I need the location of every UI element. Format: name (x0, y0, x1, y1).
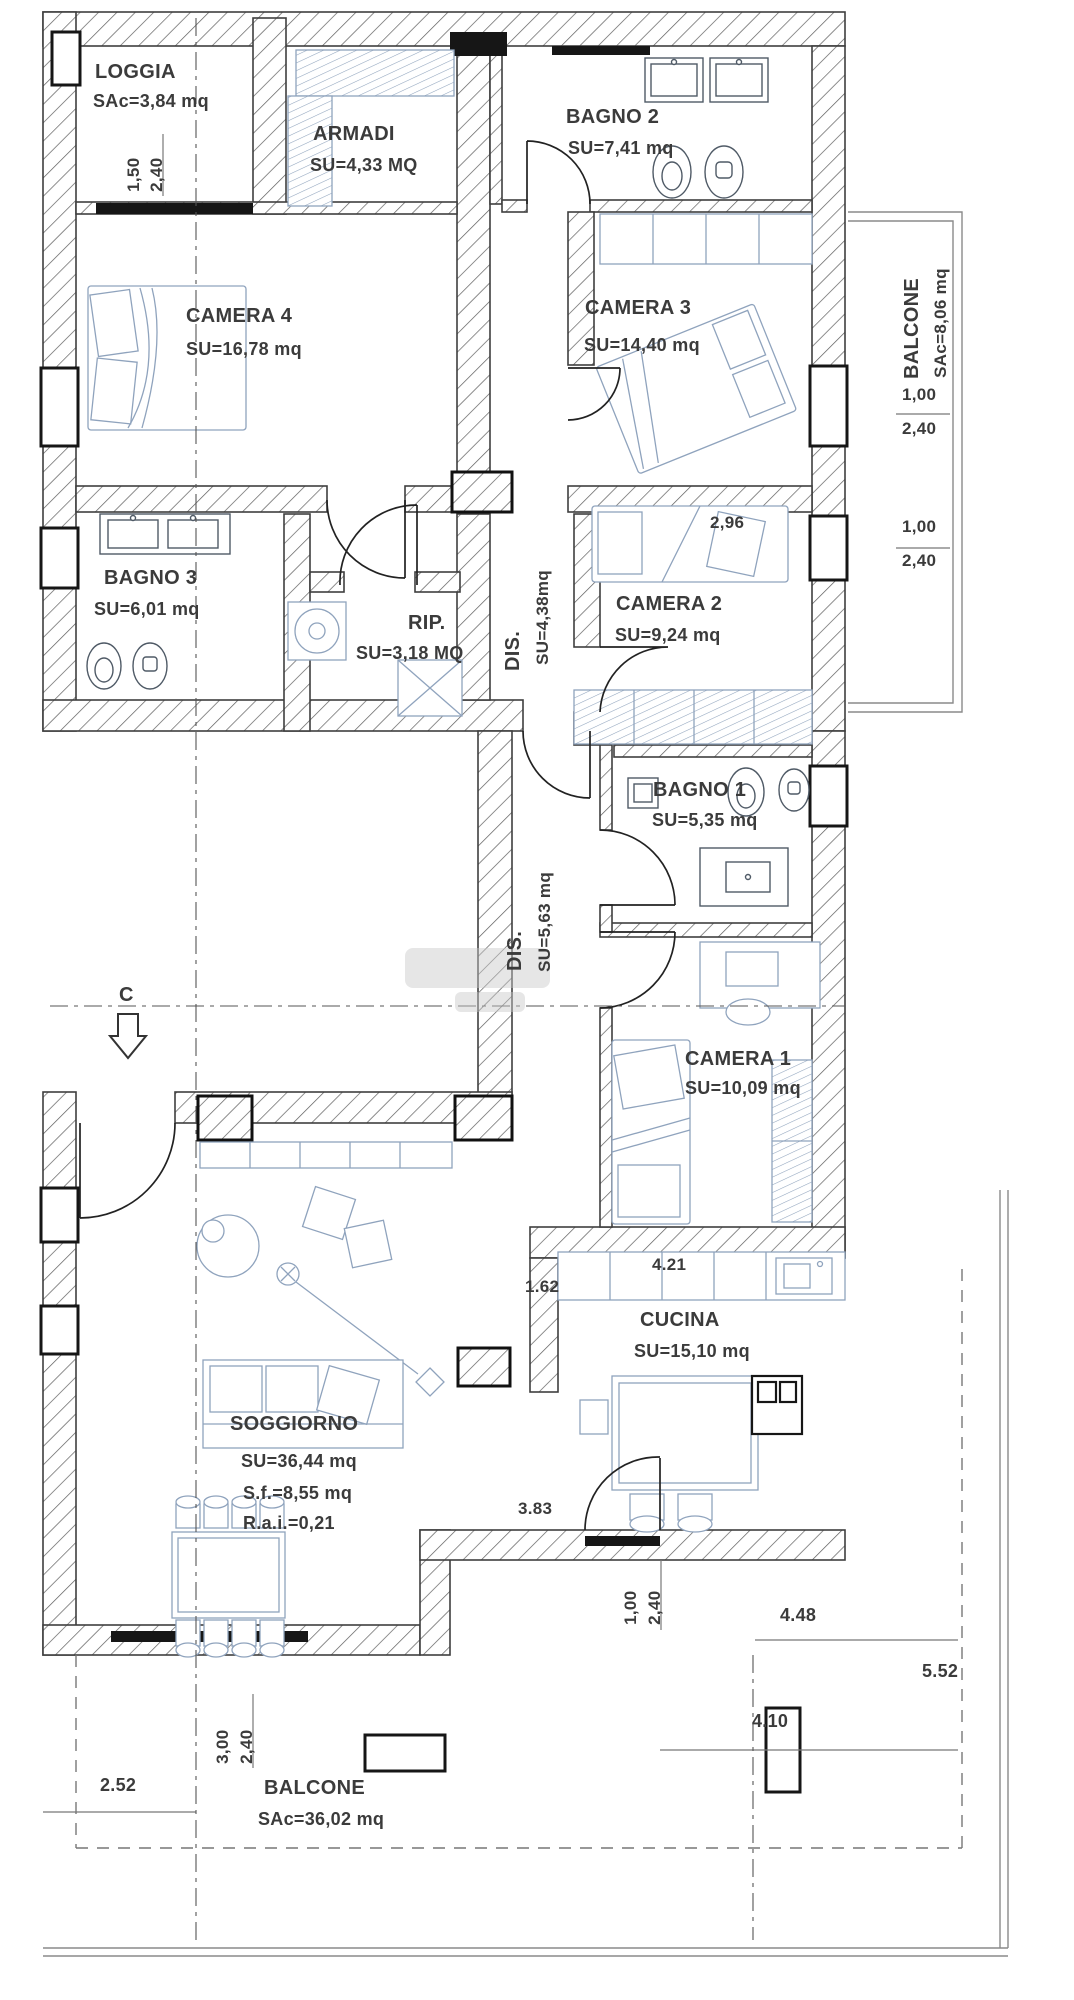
room-label-balcone-right: BALCONE (902, 278, 923, 379)
door-arc (600, 932, 675, 1008)
room-area-dis1: SU=4,38mq (534, 570, 552, 665)
desk (700, 942, 820, 1025)
dim-balcone-right-lower-a: 1,00 (902, 518, 936, 536)
wall (43, 12, 845, 46)
wall (490, 46, 502, 204)
dim-terrace-width: 4.48 (780, 1606, 816, 1625)
room-area-sf-soggiorno: S.f.=8,55 mq (243, 1484, 352, 1503)
room-label-dis1: DIS. (503, 631, 524, 671)
door-arc (80, 1123, 175, 1218)
room-label-cucina: CUCINA (640, 1310, 720, 1331)
room-area-balcone-right: SAc=8,06 mq (932, 268, 950, 378)
room-area-rip: SU=3,18 MQ (356, 644, 464, 663)
wall (76, 486, 327, 512)
window (810, 516, 847, 580)
wardrobe (296, 50, 454, 96)
room-area-camera4: SU=16,78 mq (186, 340, 302, 359)
door-arc (327, 500, 405, 578)
room-label-loggia: LOGGIA (95, 62, 176, 83)
room-area-balcone-bottom: SAc=36,02 mq (258, 1810, 384, 1829)
room-area-loggia: SAc=3,84 mq (93, 92, 209, 111)
wall (600, 923, 812, 937)
watermark (405, 948, 550, 988)
bidet (705, 146, 743, 198)
watermark (405, 948, 550, 1012)
room-label-bagno2: BAGNO 2 (566, 107, 659, 128)
room-label-balcone-bottom: BALCONE (264, 1778, 365, 1799)
room-label-soggiorno: SOGGIORNO (230, 1414, 358, 1435)
window (810, 766, 847, 826)
dim-loggia-width: 1,50 (125, 158, 143, 192)
closet-row (600, 214, 812, 264)
dim-cucina-door-b: 2,40 (646, 1591, 664, 1625)
dim-balcone-right-lower-b: 2,40 (902, 552, 936, 570)
toilet (87, 643, 121, 689)
room-area-dis2: SU=5,63 mq (536, 872, 554, 972)
room-area-rai-soggiorno: R.a.i.=0,21 (243, 1514, 335, 1533)
room-area-camera3: SU=14,40 mq (584, 336, 700, 355)
washing-machine (288, 602, 346, 660)
wall (600, 905, 612, 932)
double-bed (596, 304, 797, 474)
bidet (779, 769, 809, 811)
room-area-camera2: SU=9,24 mq (615, 626, 721, 645)
shower (700, 848, 788, 906)
railing-layer (43, 212, 1008, 1956)
pillar (198, 1096, 252, 1140)
wall (405, 486, 457, 512)
kitchen-counter (558, 1252, 845, 1300)
room-label-camera1: CAMERA 1 (685, 1049, 791, 1070)
room-label-camera3: CAMERA 3 (585, 298, 691, 319)
room-area-camera1: SU=10,09 mq (685, 1079, 801, 1098)
window (41, 368, 78, 446)
sideboard (200, 1142, 452, 1168)
armchair (303, 1187, 392, 1268)
dim-balcone-door-b: 2,40 (238, 1730, 256, 1764)
door-arc (600, 830, 675, 905)
dim-cucina-top: 4.21 (652, 1256, 686, 1274)
planter (365, 1735, 445, 1771)
dim-cucina-door-a: 1,00 (622, 1591, 640, 1625)
wall (253, 18, 286, 214)
glazing-band (450, 32, 507, 56)
section-arrow-icon (110, 1014, 146, 1058)
glazing-band (96, 203, 253, 214)
window (41, 1306, 78, 1354)
wall (310, 572, 344, 592)
kitchen-appliance (752, 1376, 802, 1434)
section-marker-label: C (119, 985, 134, 1006)
room-label-bagno1: BAGNO 1 (653, 780, 746, 801)
wardrobe (288, 96, 332, 206)
pillar (458, 1348, 510, 1386)
dim-camera2-width: 2,96 (710, 514, 744, 532)
sink (100, 514, 230, 554)
single-bed (612, 1040, 690, 1224)
room-area-cucina: SU=15,10 mq (634, 1342, 750, 1361)
room-area-soggiorno: SU=36,44 mq (241, 1452, 357, 1471)
room-label-camera2: CAMERA 2 (616, 594, 722, 615)
kitchen-table (612, 1376, 758, 1490)
round-table (197, 1215, 259, 1277)
dim-balcone-door-a: 3,00 (214, 1730, 232, 1764)
room-area-bagno2: SU=7,41 mq (568, 139, 674, 158)
wall (43, 1092, 76, 1655)
wall (457, 46, 490, 490)
room-label-camera4: CAMERA 4 (186, 306, 292, 327)
room-label-rip: RIP. (408, 613, 446, 634)
wall (478, 731, 512, 1123)
dim-balcone-right-upper-b: 2,40 (902, 420, 936, 438)
wall (502, 200, 527, 212)
pillar (455, 1096, 512, 1140)
wall (614, 745, 812, 757)
section-arrow-icon (110, 1014, 146, 1058)
wardrobe (574, 690, 812, 744)
glazing-band (585, 1536, 660, 1546)
window (41, 1188, 78, 1242)
storage-box (398, 660, 462, 716)
window (810, 366, 847, 446)
watermark (455, 992, 525, 1012)
floor-plan: LOGGIA SAc=3,84 mq 1,50 2,40 ARMADI SU=4… (0, 0, 1074, 2000)
dim-balcone-bottom-right: 4.10 (752, 1712, 788, 1731)
window (41, 528, 78, 588)
room-label-bagno3: BAGNO 3 (104, 568, 197, 589)
room-label-armadi: ARMADI (313, 124, 395, 145)
dim-terrace-side: 5.52 (922, 1662, 958, 1681)
room-area-armadi: SU=4,33 MQ (310, 156, 418, 175)
room-label-dis2: DIS. (505, 931, 526, 971)
dim-cucina-left-lower: 3.83 (518, 1500, 552, 1518)
dim-loggia-depth: 2,40 (148, 158, 166, 192)
room-area-bagno1: SU=5,35 mq (652, 811, 758, 830)
wall (590, 200, 812, 212)
shaft (452, 472, 512, 512)
wall (600, 1008, 612, 1227)
dim-balcone-bottom-left: 2.52 (100, 1776, 136, 1795)
window (52, 32, 80, 85)
wall (600, 745, 612, 830)
dim-balcone-right-upper-a: 1,00 (902, 386, 936, 404)
bidet (133, 643, 167, 689)
wall (415, 572, 460, 592)
sink (645, 58, 768, 102)
dim-cucina-left-upper: 1.62 (525, 1278, 559, 1296)
glazing-band (552, 46, 650, 55)
room-area-bagno3: SU=6,01 mq (94, 600, 200, 619)
single-bed (592, 506, 788, 582)
